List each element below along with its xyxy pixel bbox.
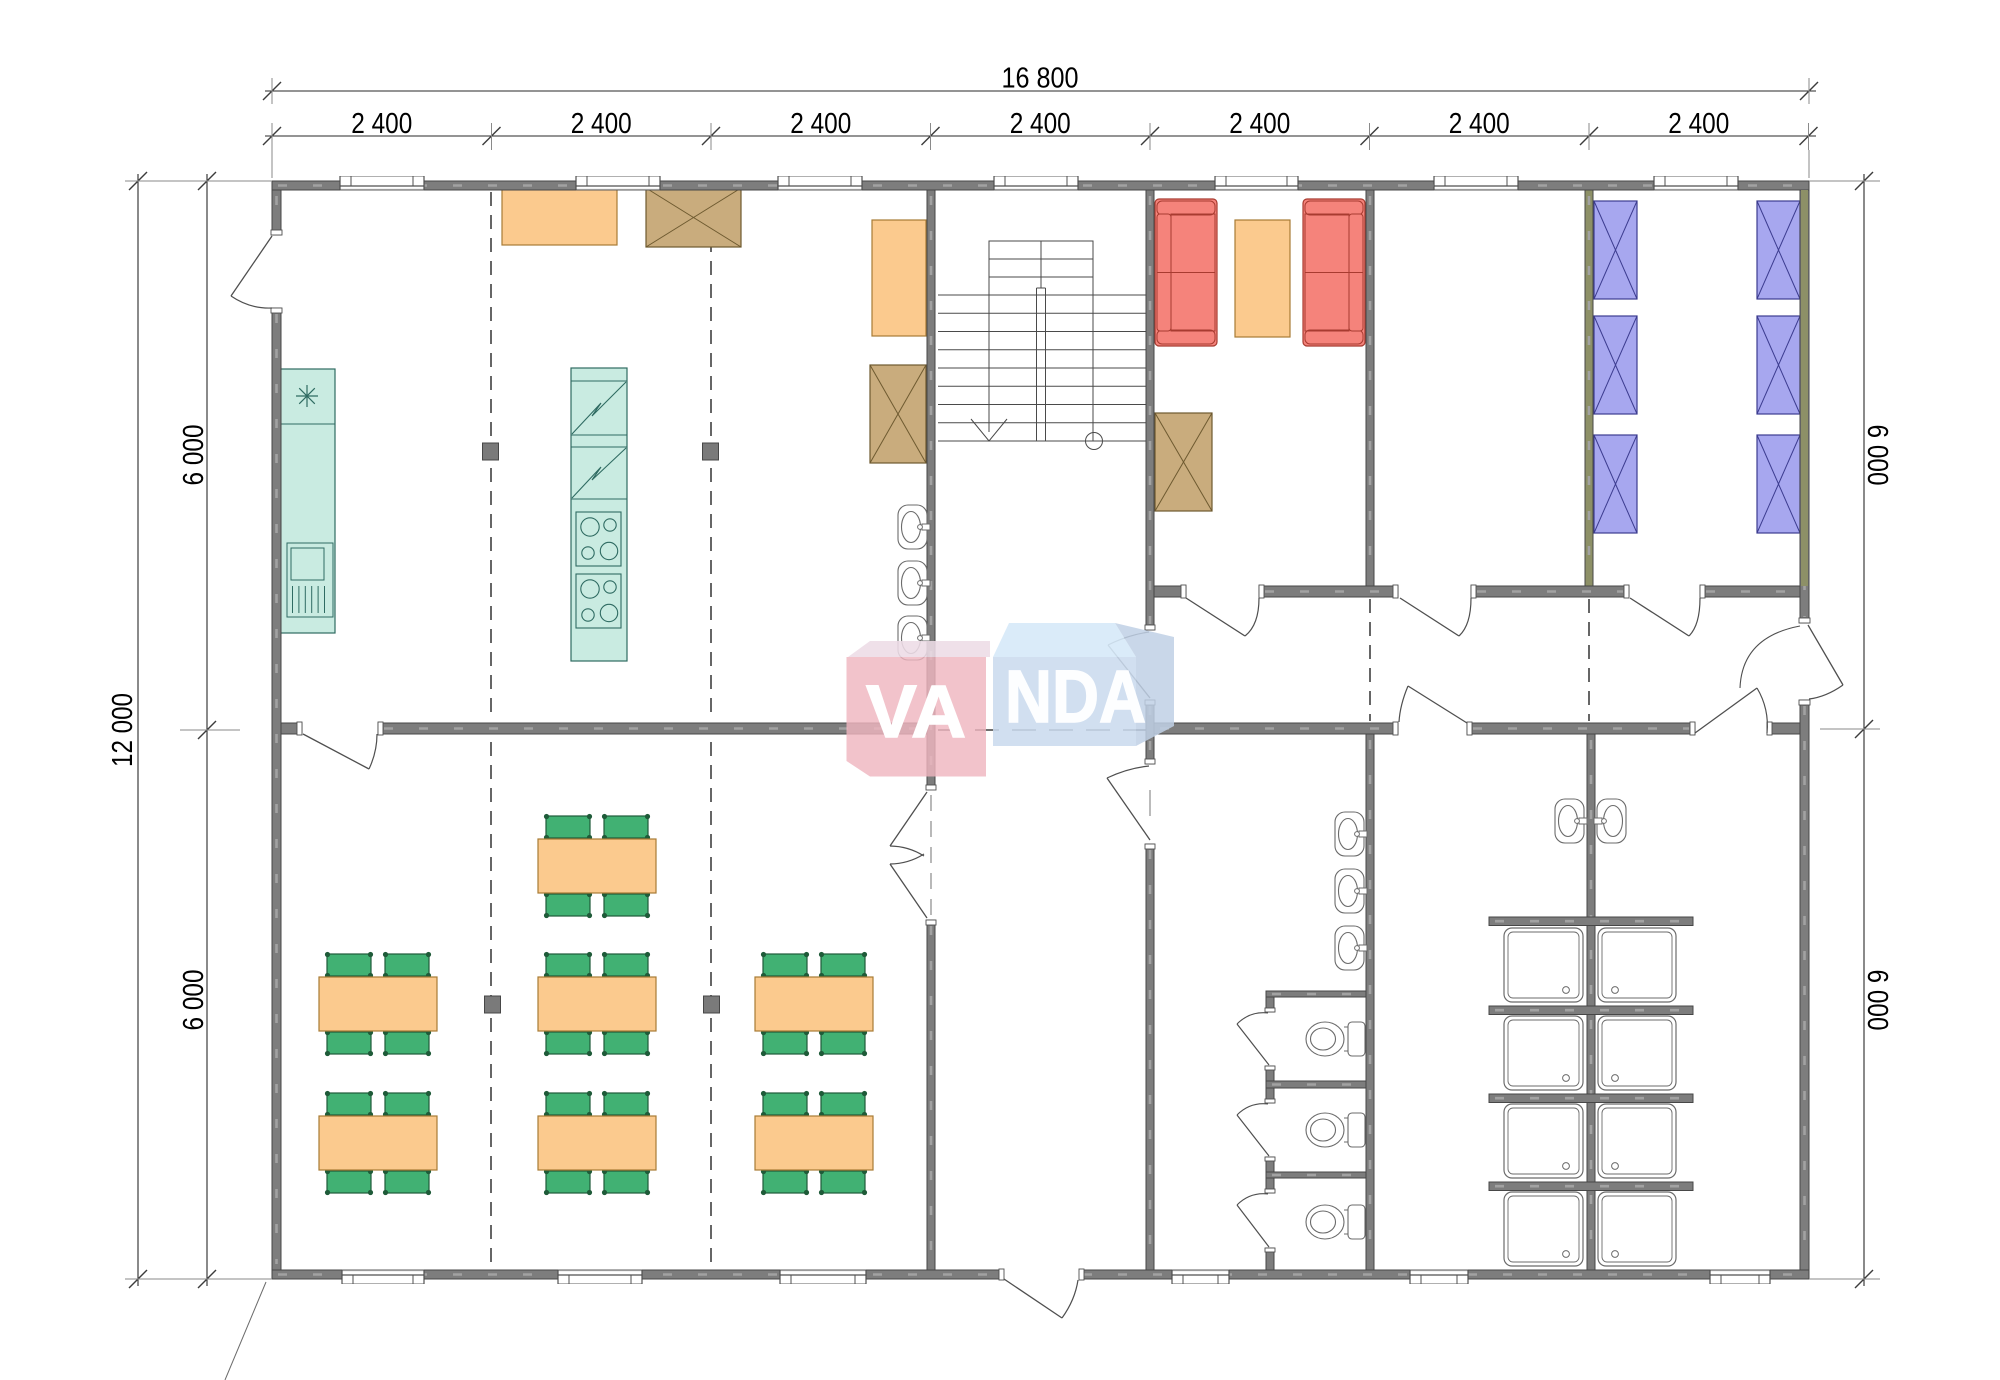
svg-text:16 800: 16 800 [1002,63,1079,95]
svg-text:2 400: 2 400 [1668,108,1729,140]
svg-text:6 000: 6 000 [178,970,210,1031]
svg-text:VA: VA [866,670,966,753]
svg-text:2 400: 2 400 [1449,108,1510,140]
svg-text:2 400: 2 400 [571,108,632,140]
svg-text:6 000: 6 000 [1861,970,1893,1031]
svg-text:2 400: 2 400 [351,108,412,140]
svg-text:6 000: 6 000 [1861,425,1893,486]
svg-text:NDA: NDA [1005,655,1146,738]
svg-text:2 400: 2 400 [1229,108,1290,140]
svg-text:6 000: 6 000 [178,425,210,486]
svg-text:2 400: 2 400 [1010,108,1071,140]
svg-text:12 000: 12 000 [107,693,139,767]
svg-text:2 400: 2 400 [790,108,851,140]
